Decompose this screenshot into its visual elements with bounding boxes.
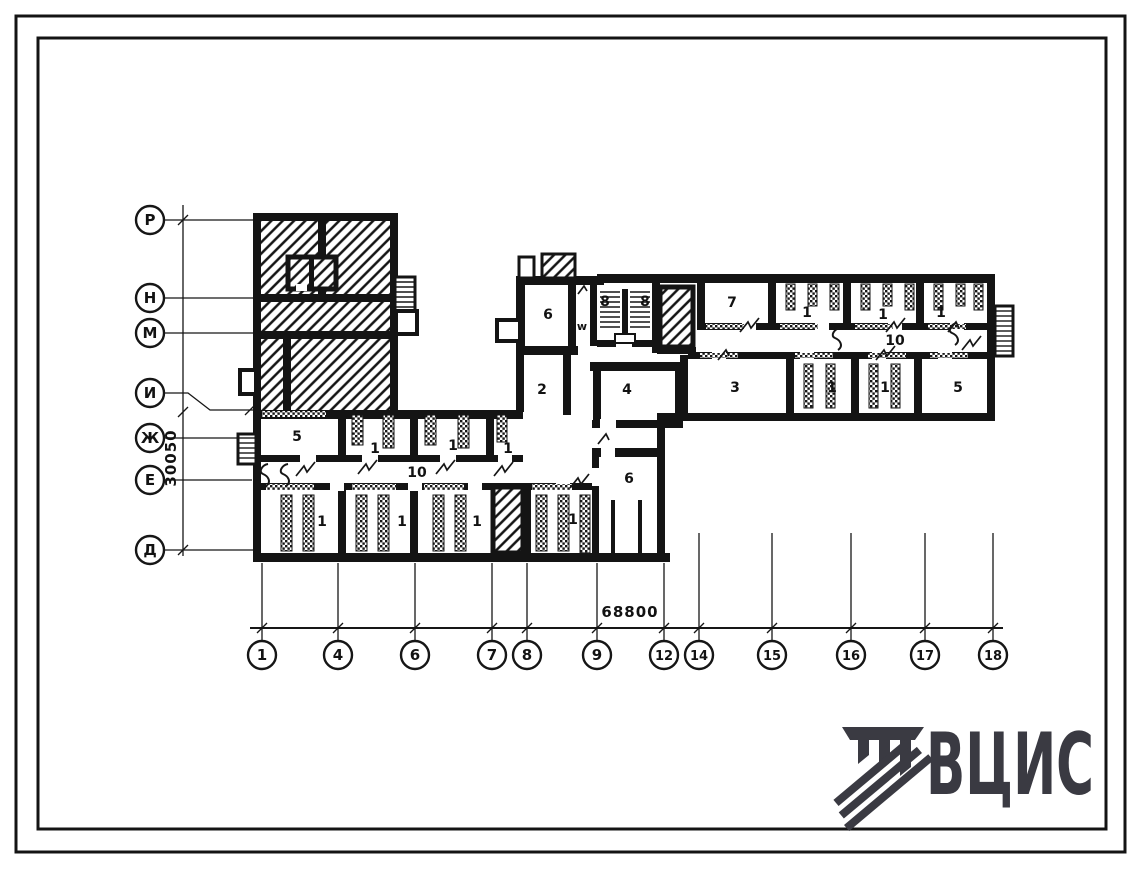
room-label: w [577, 320, 587, 333]
axis-col-label: 4 [333, 646, 343, 664]
axis-row-label: М [143, 324, 158, 342]
room-label: 2 [537, 382, 547, 398]
axis-col-label: 8 [522, 646, 532, 664]
publisher-logo: ВЦИС [827, 715, 1094, 831]
logo-text: ВЦИС [926, 715, 1094, 815]
room-label: 1 [397, 514, 407, 530]
room-label: 1 [448, 438, 458, 454]
room-label: 1 [880, 380, 890, 396]
room-label: 6 [543, 307, 553, 323]
stair-landing [615, 334, 635, 343]
room-label: 3 [730, 380, 740, 396]
room-label: 1 [568, 512, 578, 528]
axis-col-label: 1 [257, 646, 267, 664]
hatched-shaft-middle [660, 287, 693, 347]
drawing-sheet: Р Н М И Ж Е Д 30050 1 [0, 0, 1139, 869]
room-label: 1 [802, 305, 812, 321]
width-dimension: 68800 [601, 603, 658, 621]
room-label: 1 [503, 441, 513, 457]
room-label: 1 [936, 305, 946, 321]
axis-row-label: Е [145, 471, 155, 489]
axis-col-label: 6 [410, 646, 420, 664]
porch-middle [497, 320, 520, 341]
height-dimension: 30050 [162, 429, 180, 486]
room-label: 8 [640, 294, 650, 310]
porch-east [396, 311, 417, 334]
hatched-block [240, 217, 417, 414]
axis-row-label: Ж [141, 429, 160, 447]
axis-col-label: 7 [487, 646, 497, 664]
axis-row-label: И [144, 384, 157, 402]
room-label: 6 [624, 471, 634, 487]
axis-row-label: Д [143, 541, 156, 559]
porch-west [240, 370, 256, 394]
axis-col-label: 18 [984, 649, 1002, 664]
axis-col-label: 14 [690, 649, 708, 664]
column-leader-lines [257, 533, 998, 641]
corridor-label: 10 [885, 333, 905, 349]
floor-plan-drawing: Р Н М И Ж Е Д 30050 1 [0, 0, 1139, 869]
room-label: 1 [370, 441, 380, 457]
axis-col-label: 16 [842, 649, 860, 664]
axis-row-label: Р [145, 211, 156, 229]
logo-icon [827, 727, 933, 831]
axis-row-label: Н [144, 289, 157, 307]
room-label: 1 [317, 514, 327, 530]
room-label: 7 [727, 295, 737, 311]
roof-vent-large [542, 254, 575, 278]
room-label: 1 [827, 380, 837, 396]
axis-col-label: 9 [592, 646, 602, 664]
room-label: 4 [622, 382, 632, 398]
room-label: 5 [292, 429, 302, 445]
south-wing [238, 410, 683, 562]
roof-vent-small [519, 257, 534, 278]
room-label: 5 [953, 380, 963, 396]
room-label: 1 [878, 307, 888, 323]
corridor-label: 10 [407, 465, 427, 481]
room-label: 1 [472, 514, 482, 530]
axis-col-label: 17 [916, 649, 934, 664]
room-label: 8 [600, 294, 610, 310]
axis-col-label: 15 [763, 649, 781, 664]
hatched-shaft-south [493, 487, 523, 553]
axis-col-label: 12 [655, 649, 673, 664]
